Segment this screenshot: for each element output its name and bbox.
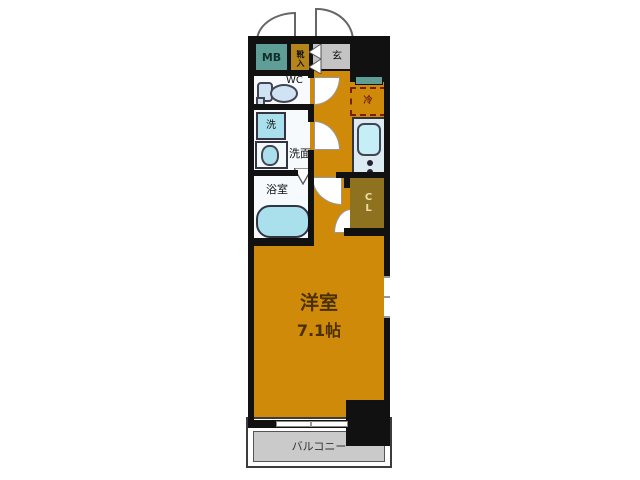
- wall: [344, 172, 390, 178]
- kitchen-sink-icon: [357, 123, 381, 156]
- bathroom-label: 浴室: [266, 184, 288, 195]
- wall: [248, 36, 390, 42]
- floor-plan: MB 靴入 玄 WC 洗 洗面 浴室 冷 CL: [0, 0, 640, 480]
- wall: [248, 70, 314, 76]
- main-room-name: 洋室: [268, 288, 370, 315]
- window-frame: [384, 296, 390, 298]
- washbasin-bowl-icon: [261, 145, 279, 166]
- wall: [308, 150, 314, 240]
- washer-label: 洗: [266, 121, 276, 131]
- wall: [308, 70, 314, 78]
- main-room-size: 7.1帖: [268, 317, 370, 341]
- entrance-label: 玄: [332, 52, 342, 62]
- wall: [344, 228, 390, 236]
- wall-corner-block: [346, 400, 390, 446]
- stove-burner-icon: [367, 160, 373, 166]
- meter-box: MB: [254, 42, 289, 73]
- wall: [248, 170, 298, 176]
- closet-label: CL: [363, 192, 373, 214]
- wall: [344, 172, 350, 188]
- toilet-bowl-icon: [270, 84, 298, 103]
- wall: [248, 238, 314, 246]
- main-room-label: 洋室 7.1帖: [268, 288, 370, 341]
- bathtub-icon: [256, 205, 310, 238]
- wall: [308, 104, 314, 122]
- wall: [248, 36, 254, 428]
- refrigerator-label: 冷: [363, 97, 372, 106]
- washing-machine-icon: 洗: [256, 112, 286, 140]
- closet: CL: [350, 178, 386, 228]
- balcony-label: バルコニー: [292, 441, 347, 452]
- refrigerator-space: 冷: [350, 87, 386, 116]
- wall: [248, 104, 314, 110]
- meter-box-label: MB: [262, 52, 281, 63]
- window-frame: [310, 421, 312, 427]
- window-frame: [384, 316, 390, 318]
- shoe-box-label: 靴入: [296, 50, 304, 68]
- wall: [384, 36, 390, 276]
- kitchen-shelf: [355, 76, 383, 85]
- window-frame: [384, 276, 390, 278]
- balcony-window: [276, 421, 348, 427]
